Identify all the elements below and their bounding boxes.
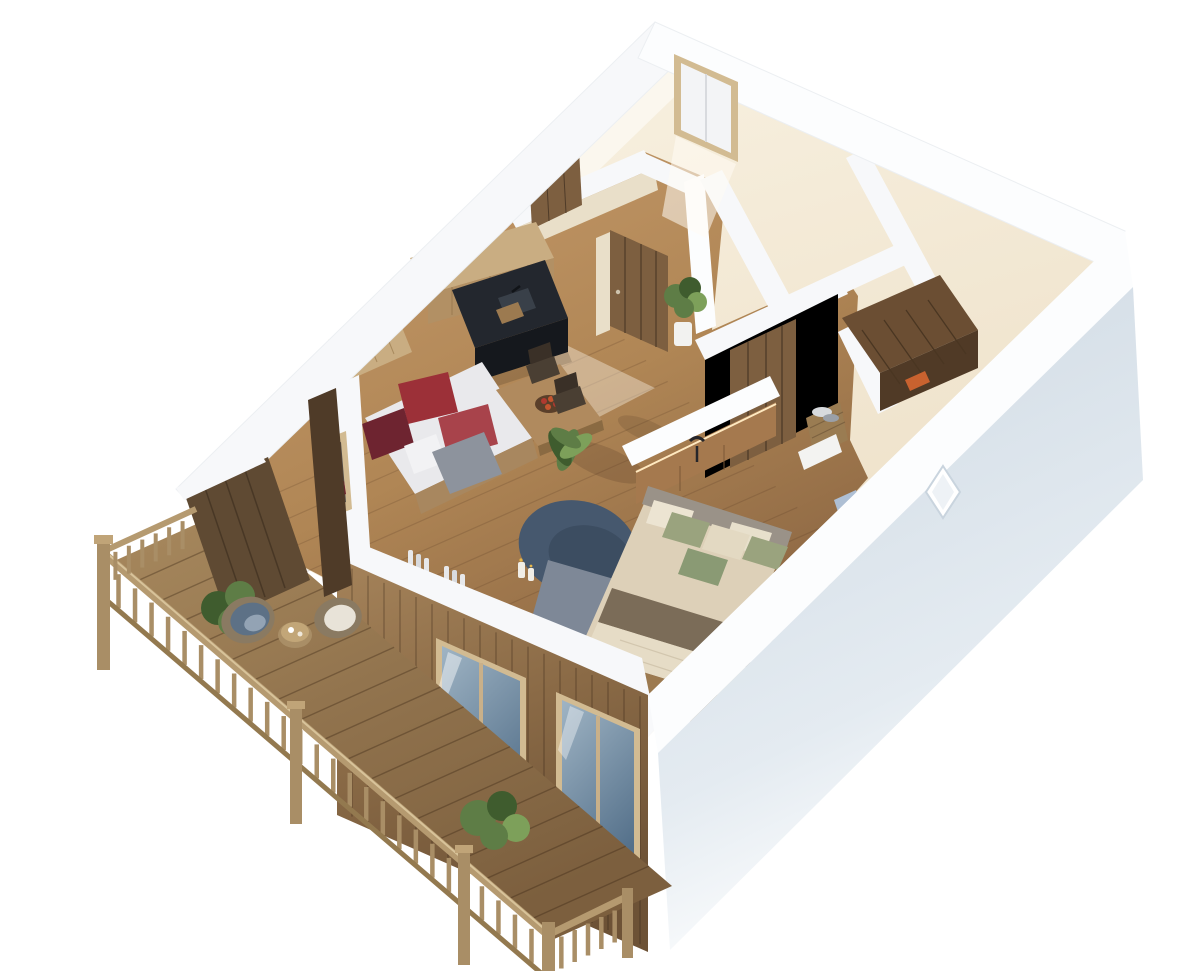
railing-post — [542, 922, 555, 971]
post-cap — [455, 845, 473, 853]
railing-post — [97, 540, 110, 670]
apple — [541, 398, 547, 404]
towel — [823, 414, 839, 422]
cup — [288, 627, 294, 633]
railing-post — [458, 850, 470, 965]
candle — [518, 562, 525, 578]
floorplan-render — [0, 0, 1200, 971]
apple — [545, 404, 551, 410]
entry-door-jamb — [596, 232, 610, 336]
cup — [298, 632, 303, 637]
post-cap — [94, 535, 113, 544]
floorplan-svg — [0, 0, 1200, 971]
foliage — [480, 822, 508, 850]
balcony-table — [278, 622, 312, 648]
foliage — [674, 298, 694, 318]
plant-pot — [674, 322, 692, 346]
railing-post — [290, 706, 302, 824]
flame — [519, 558, 522, 561]
flame — [530, 565, 533, 568]
post-cap — [287, 701, 305, 709]
table-surface — [281, 622, 309, 642]
railing-post — [622, 888, 633, 958]
candle — [528, 568, 534, 581]
door-handle — [616, 290, 620, 294]
